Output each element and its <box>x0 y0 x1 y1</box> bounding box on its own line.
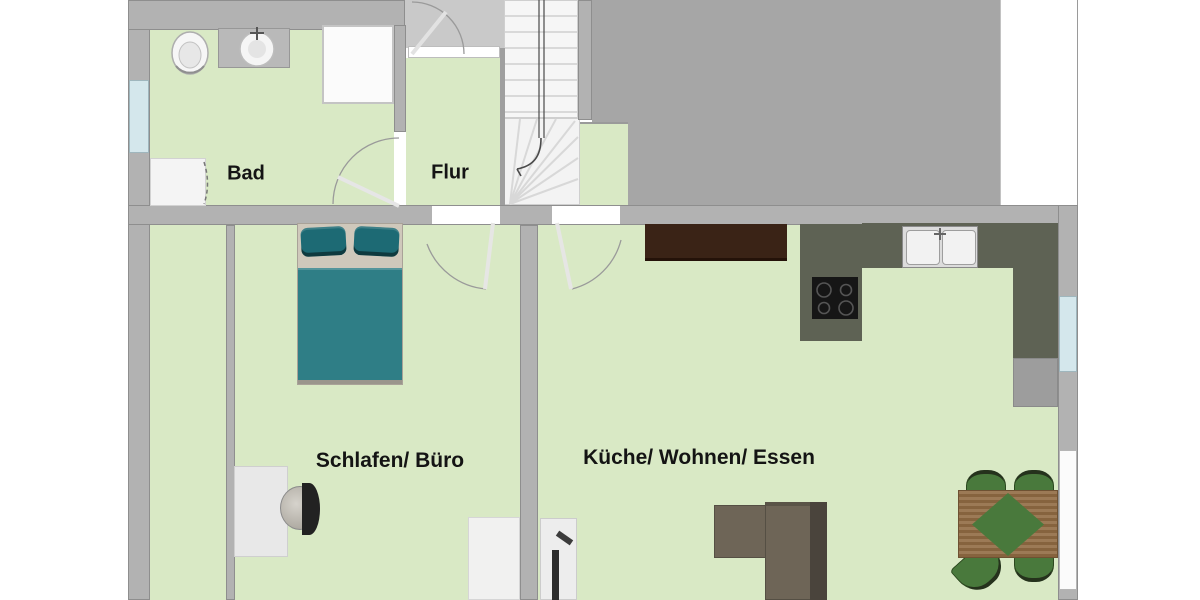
bed-foot-edge <box>298 380 402 384</box>
sofa-chaise <box>765 502 812 600</box>
bathroom-window <box>129 80 149 153</box>
pillow-right <box>353 226 399 257</box>
bathroom-label: Bad <box>227 163 265 186</box>
washing-machine <box>150 158 206 206</box>
bed <box>297 223 403 385</box>
adjacent-area-gray <box>592 0 1000 205</box>
counter-right-section <box>1013 268 1058 358</box>
kitchen-living-label: Küche/ Wohnen/ Essen <box>583 446 815 470</box>
floor-plan: Bad Flur Schlafen/ Büro Küche/ Wohnen/ E… <box>0 0 1200 600</box>
sink-basin-left <box>906 230 940 265</box>
staircase-straight-flight <box>504 0 578 118</box>
sofa-backrest <box>810 502 827 600</box>
bed-blanket <box>298 268 402 380</box>
tablecloth-diamond <box>972 493 1044 556</box>
entrance-door-threshold <box>408 46 500 58</box>
bath-hall-wall <box>394 25 406 132</box>
shower <box>322 25 394 104</box>
kitchen-window-lower <box>1059 450 1077 590</box>
bedroom-kitchen-wall <box>520 225 538 600</box>
void-area <box>1000 0 1078 205</box>
dining-table <box>958 490 1058 558</box>
hallway-label: Flur <box>431 162 469 185</box>
tv <box>552 550 559 600</box>
kitchen-sink-unit <box>902 226 978 268</box>
bathroom-door-opening <box>394 132 406 205</box>
bedroom-label: Schlafen/ Büro <box>316 449 464 473</box>
sink-basin-right <box>942 230 976 265</box>
hall-stair-wall <box>500 48 505 205</box>
stair-side-wall <box>578 0 592 120</box>
staircase-winders <box>504 118 580 205</box>
bedroom-door-opening <box>432 206 500 224</box>
cooktop <box>812 277 858 319</box>
dishwasher <box>1013 358 1058 407</box>
stair-landing-floor-2 <box>580 122 628 205</box>
sideboard <box>645 224 787 261</box>
wardrobe <box>468 517 520 600</box>
closet-strip-floor <box>150 225 226 600</box>
entrance-vestibule <box>397 0 505 48</box>
kitchen-door-opening <box>552 206 620 224</box>
kitchen-window-upper <box>1059 296 1077 372</box>
pillow-left <box>300 226 346 257</box>
bathroom-vanity <box>218 28 290 68</box>
